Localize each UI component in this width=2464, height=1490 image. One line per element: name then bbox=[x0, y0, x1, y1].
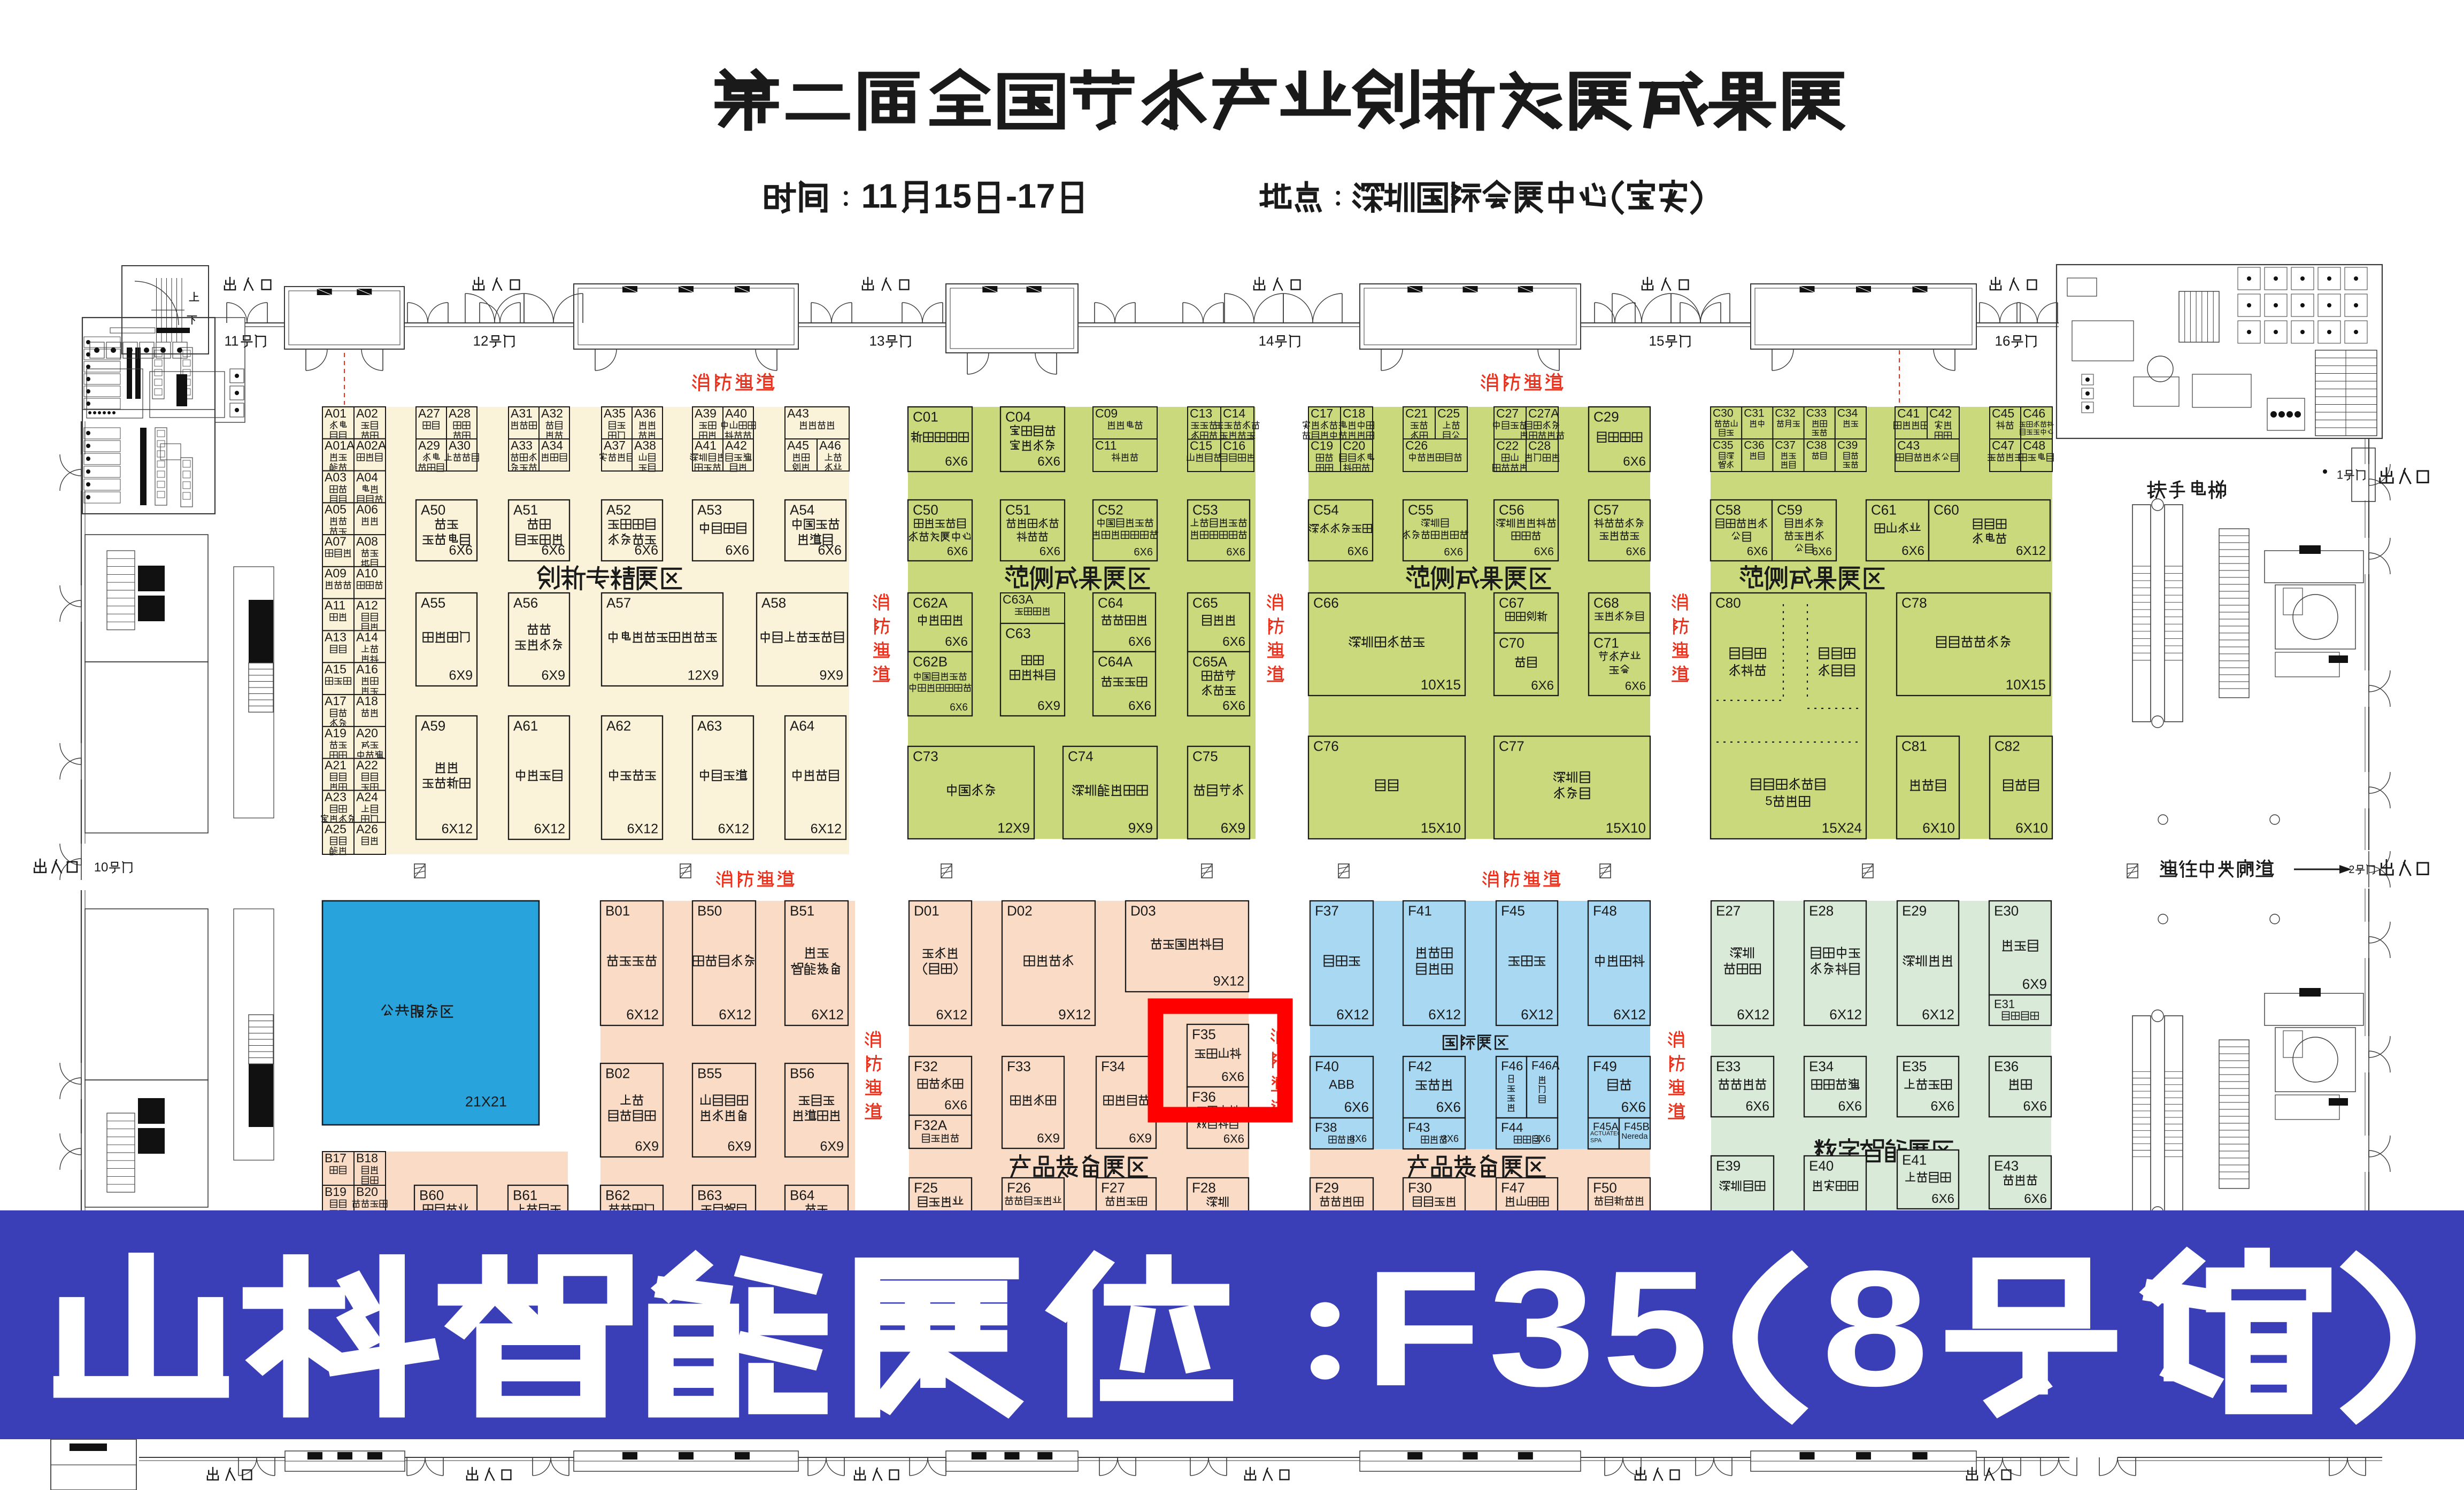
svg-text:C62A: C62A bbox=[913, 595, 948, 611]
svg-text:6X12: 6X12 bbox=[1829, 1006, 1862, 1022]
svg-text:C74: C74 bbox=[1068, 748, 1094, 765]
svg-text:C65A: C65A bbox=[1192, 654, 1228, 670]
svg-text:6X12: 6X12 bbox=[1613, 1006, 1646, 1022]
svg-text:F33: F33 bbox=[1007, 1059, 1031, 1075]
svg-text:B61: B61 bbox=[513, 1187, 537, 1203]
svg-text:A41: A41 bbox=[695, 438, 717, 452]
svg-text:SPA: SPA bbox=[1590, 1138, 1602, 1144]
svg-text:B64: B64 bbox=[790, 1187, 814, 1203]
svg-text:10X15: 10X15 bbox=[2006, 676, 2046, 692]
svg-text:B62: B62 bbox=[605, 1187, 630, 1203]
svg-text:12X9: 12X9 bbox=[688, 668, 719, 683]
svg-text:F25: F25 bbox=[914, 1180, 938, 1196]
svg-text:A46: A46 bbox=[819, 438, 841, 452]
svg-text:6X6: 6X6 bbox=[635, 543, 658, 558]
svg-text:6X6: 6X6 bbox=[1222, 635, 1245, 649]
svg-text:6X6: 6X6 bbox=[947, 544, 968, 558]
svg-text:A05: A05 bbox=[325, 503, 346, 516]
svg-text:F32: F32 bbox=[914, 1059, 938, 1075]
svg-text:6X6: 6X6 bbox=[1531, 678, 1554, 693]
svg-text:F44: F44 bbox=[1501, 1121, 1523, 1135]
svg-text:E35: E35 bbox=[1902, 1059, 1927, 1075]
svg-text:C66: C66 bbox=[1313, 595, 1339, 611]
svg-text:6X9: 6X9 bbox=[1037, 699, 1060, 713]
svg-text:A31: A31 bbox=[511, 406, 533, 420]
svg-text:C63A: C63A bbox=[1003, 592, 1034, 606]
svg-text:F32A: F32A bbox=[914, 1117, 948, 1133]
svg-text:C26: C26 bbox=[1405, 438, 1428, 452]
svg-text:E33: E33 bbox=[1716, 1059, 1741, 1075]
svg-text:9X12: 9X12 bbox=[1058, 1006, 1091, 1022]
svg-text:6X6: 6X6 bbox=[449, 543, 473, 558]
svg-text:E43: E43 bbox=[1994, 1158, 2019, 1174]
svg-text:E34: E34 bbox=[1809, 1059, 1834, 1075]
svg-text:6X6: 6X6 bbox=[1931, 1099, 1954, 1114]
svg-text:F43: F43 bbox=[1408, 1121, 1430, 1135]
svg-text:A63: A63 bbox=[697, 718, 722, 734]
svg-text:A32: A32 bbox=[541, 406, 563, 420]
svg-text:6X12: 6X12 bbox=[718, 822, 749, 837]
svg-text:C15: C15 bbox=[1190, 439, 1212, 453]
svg-text:C48: C48 bbox=[2023, 438, 2045, 452]
svg-text:6X6: 6X6 bbox=[1838, 1099, 1862, 1114]
svg-text:C59: C59 bbox=[1777, 502, 1803, 518]
svg-text:6X6: 6X6 bbox=[945, 635, 968, 649]
svg-text:A45: A45 bbox=[787, 438, 809, 452]
svg-text:6X6: 6X6 bbox=[1931, 1192, 1954, 1206]
svg-text:6X6: 6X6 bbox=[1037, 454, 1060, 469]
svg-text:6X12: 6X12 bbox=[534, 822, 565, 837]
svg-text:6X6: 6X6 bbox=[1625, 679, 1646, 692]
svg-text:B50: B50 bbox=[697, 903, 722, 919]
svg-text:A13: A13 bbox=[325, 630, 346, 644]
svg-text:A11: A11 bbox=[325, 598, 345, 612]
svg-text:C38: C38 bbox=[1806, 439, 1827, 452]
svg-text:C01: C01 bbox=[913, 409, 938, 425]
svg-text:C53: C53 bbox=[1192, 502, 1218, 518]
svg-text:E40: E40 bbox=[1809, 1158, 1834, 1174]
svg-text:A43: A43 bbox=[787, 406, 809, 420]
svg-text:C39: C39 bbox=[1837, 439, 1858, 452]
svg-text:C71: C71 bbox=[1593, 635, 1619, 651]
svg-text:6X6: 6X6 bbox=[1901, 544, 1924, 558]
svg-text:C29: C29 bbox=[1593, 409, 1619, 425]
svg-text:C27: C27 bbox=[1496, 406, 1519, 420]
svg-text:F40: F40 bbox=[1315, 1059, 1339, 1075]
svg-text:6X6: 6X6 bbox=[944, 1098, 967, 1113]
svg-text:A52: A52 bbox=[606, 502, 631, 518]
svg-text:A03: A03 bbox=[325, 470, 346, 484]
svg-text:6X6: 6X6 bbox=[1746, 1099, 1769, 1114]
svg-text:C16: C16 bbox=[1223, 439, 1245, 453]
svg-text:A27: A27 bbox=[418, 406, 440, 420]
svg-text:C70: C70 bbox=[1499, 635, 1524, 651]
svg-text:C62B: C62B bbox=[913, 654, 948, 670]
svg-text:C34: C34 bbox=[1837, 407, 1858, 420]
svg-text:C28: C28 bbox=[1528, 439, 1551, 453]
svg-text:E41: E41 bbox=[1902, 1152, 1927, 1168]
svg-text:C60: C60 bbox=[1934, 502, 1959, 518]
svg-text:5: 5 bbox=[1765, 794, 1772, 808]
svg-text:E29: E29 bbox=[1902, 903, 1927, 919]
svg-text:B55: B55 bbox=[697, 1066, 722, 1082]
svg-text:A18: A18 bbox=[356, 694, 378, 708]
svg-text:A02A: A02A bbox=[356, 438, 387, 452]
svg-text:-17: -17 bbox=[1006, 177, 1056, 215]
svg-text:F38: F38 bbox=[1315, 1121, 1337, 1135]
svg-text:A04: A04 bbox=[356, 470, 378, 484]
svg-text:A34: A34 bbox=[541, 438, 563, 452]
svg-text:A51: A51 bbox=[513, 502, 538, 518]
svg-text:A25: A25 bbox=[325, 822, 346, 836]
svg-text:A64: A64 bbox=[790, 718, 814, 734]
svg-text:F45B: F45B bbox=[1624, 1121, 1650, 1133]
svg-text:F45: F45 bbox=[1501, 903, 1525, 919]
svg-text:E36: E36 bbox=[1994, 1059, 2019, 1075]
svg-text:ABB: ABB bbox=[1329, 1077, 1354, 1092]
svg-text:C42: C42 bbox=[1929, 406, 1952, 420]
svg-text:C50: C50 bbox=[913, 502, 938, 518]
svg-text:A56: A56 bbox=[513, 595, 538, 611]
svg-text:F29: F29 bbox=[1315, 1180, 1339, 1196]
svg-text:C57: C57 bbox=[1593, 502, 1619, 518]
svg-text:21X21: 21X21 bbox=[465, 1093, 507, 1109]
svg-text:6X6: 6X6 bbox=[1222, 699, 1245, 713]
svg-text:A29: A29 bbox=[418, 438, 440, 452]
svg-text:A57: A57 bbox=[606, 595, 631, 611]
svg-text:C58: C58 bbox=[1715, 502, 1741, 518]
svg-text:6X6: 6X6 bbox=[945, 454, 968, 469]
svg-text:3: 3 bbox=[1488, 1237, 1595, 1420]
svg-text:6X12: 6X12 bbox=[627, 822, 658, 837]
svg-text:A08: A08 bbox=[356, 534, 378, 548]
svg-text:8: 8 bbox=[1822, 1237, 1929, 1420]
svg-text:B02: B02 bbox=[605, 1066, 630, 1082]
svg-text:A21: A21 bbox=[325, 758, 346, 772]
svg-text:A26: A26 bbox=[356, 822, 378, 836]
svg-text:F36: F36 bbox=[1192, 1089, 1216, 1105]
svg-text:C20: C20 bbox=[1343, 439, 1365, 453]
svg-text:C27A: C27A bbox=[1528, 406, 1559, 420]
svg-text:C09: C09 bbox=[1095, 406, 1118, 420]
svg-text:C65: C65 bbox=[1192, 595, 1218, 611]
svg-text:C13: C13 bbox=[1190, 406, 1212, 420]
svg-text:6X12: 6X12 bbox=[1428, 1006, 1461, 1022]
svg-text:C78: C78 bbox=[1901, 595, 1927, 611]
svg-text:A38: A38 bbox=[634, 438, 656, 452]
svg-text:6X12: 6X12 bbox=[626, 1006, 659, 1022]
svg-text:C19: C19 bbox=[1311, 439, 1333, 453]
svg-text:6X6: 6X6 bbox=[1128, 699, 1151, 713]
svg-text:A09: A09 bbox=[325, 566, 346, 580]
svg-text:5: 5 bbox=[1601, 1237, 1708, 1420]
svg-text:A14: A14 bbox=[356, 630, 378, 644]
svg-text:6X6: 6X6 bbox=[1747, 544, 1768, 558]
svg-text:A06: A06 bbox=[356, 503, 378, 516]
svg-text:C21: C21 bbox=[1405, 406, 1428, 420]
svg-text:6X9: 6X9 bbox=[1221, 820, 1245, 836]
svg-text:9X12: 9X12 bbox=[1213, 974, 1244, 989]
svg-text:6X6: 6X6 bbox=[1626, 546, 1646, 558]
svg-text:C77: C77 bbox=[1499, 738, 1524, 754]
svg-text:A61: A61 bbox=[513, 718, 538, 734]
svg-text:C52: C52 bbox=[1098, 502, 1123, 518]
svg-text:C43: C43 bbox=[1897, 438, 1920, 452]
svg-text:C04: C04 bbox=[1005, 409, 1031, 425]
svg-text:B01: B01 bbox=[605, 903, 630, 919]
svg-text:C67: C67 bbox=[1499, 595, 1524, 611]
svg-text:C22: C22 bbox=[1496, 439, 1519, 453]
svg-text:6X9: 6X9 bbox=[1037, 1131, 1060, 1146]
svg-text:F41: F41 bbox=[1408, 903, 1432, 919]
svg-text:A42: A42 bbox=[725, 438, 747, 452]
svg-text:A20: A20 bbox=[356, 726, 378, 740]
svg-text:C25: C25 bbox=[1437, 406, 1460, 420]
svg-text:13: 13 bbox=[869, 333, 885, 349]
svg-text:C31: C31 bbox=[1744, 407, 1765, 420]
svg-text:C33: C33 bbox=[1806, 407, 1827, 420]
svg-text:6X6: 6X6 bbox=[726, 543, 749, 558]
svg-text:15: 15 bbox=[934, 177, 972, 215]
svg-text:A17: A17 bbox=[325, 694, 346, 708]
svg-text:6X12: 6X12 bbox=[811, 1006, 844, 1022]
svg-text:F46: F46 bbox=[1501, 1059, 1523, 1074]
svg-text:6X12: 6X12 bbox=[936, 1008, 967, 1023]
svg-text:6X12: 6X12 bbox=[1737, 1006, 1769, 1022]
svg-text:D03: D03 bbox=[1130, 903, 1156, 919]
svg-text:C82: C82 bbox=[1995, 738, 2020, 754]
svg-text:C64: C64 bbox=[1098, 595, 1123, 611]
svg-text:C45: C45 bbox=[1992, 406, 2014, 420]
svg-text:B56: B56 bbox=[790, 1066, 814, 1082]
svg-text:C32: C32 bbox=[1775, 407, 1796, 420]
svg-text:B60: B60 bbox=[419, 1187, 444, 1203]
svg-text:15: 15 bbox=[1649, 333, 1665, 349]
svg-text:A12: A12 bbox=[356, 598, 378, 612]
svg-text:A22: A22 bbox=[356, 758, 378, 772]
svg-text:1: 1 bbox=[2337, 468, 2343, 481]
svg-text:6X9: 6X9 bbox=[542, 668, 565, 683]
svg-text:F35: F35 bbox=[1192, 1026, 1216, 1043]
svg-text:6X6: 6X6 bbox=[1812, 546, 1832, 558]
svg-text:E27: E27 bbox=[1716, 903, 1741, 919]
svg-text:F49: F49 bbox=[1593, 1059, 1617, 1075]
svg-text:6X12: 6X12 bbox=[1336, 1006, 1369, 1022]
svg-text:F: F bbox=[1364, 1237, 1482, 1420]
svg-text:C11: C11 bbox=[1095, 438, 1117, 452]
svg-text:10X15: 10X15 bbox=[1421, 676, 1461, 692]
svg-text:6X6: 6X6 bbox=[1534, 546, 1554, 558]
svg-text:E31: E31 bbox=[1994, 997, 2015, 1010]
svg-text:12X9: 12X9 bbox=[997, 820, 1030, 836]
svg-text:F34: F34 bbox=[1101, 1059, 1125, 1075]
svg-text:6X12: 6X12 bbox=[442, 822, 473, 837]
svg-text:F47: F47 bbox=[1501, 1180, 1525, 1196]
svg-text:15X10: 15X10 bbox=[1421, 820, 1461, 836]
svg-text:3X6: 3X6 bbox=[1350, 1133, 1367, 1144]
svg-text:6X6: 6X6 bbox=[1621, 1099, 1646, 1115]
svg-text:C61: C61 bbox=[1871, 502, 1897, 518]
svg-text:6X6: 6X6 bbox=[1128, 635, 1151, 649]
svg-text:A28: A28 bbox=[449, 406, 471, 420]
svg-text:6X6: 6X6 bbox=[1344, 1099, 1369, 1115]
svg-text:A37: A37 bbox=[604, 438, 626, 452]
svg-text:6X12: 6X12 bbox=[1922, 1006, 1954, 1022]
svg-text:E39: E39 bbox=[1716, 1158, 1741, 1174]
svg-text:C76: C76 bbox=[1313, 738, 1339, 754]
svg-text:D01: D01 bbox=[914, 903, 940, 919]
svg-text:6X6: 6X6 bbox=[1226, 546, 1245, 558]
svg-text:A54: A54 bbox=[790, 502, 814, 518]
svg-text:A01: A01 bbox=[325, 406, 346, 420]
svg-text:11: 11 bbox=[225, 333, 239, 349]
svg-text:F37: F37 bbox=[1315, 903, 1339, 919]
svg-text:F46A: F46A bbox=[1531, 1059, 1560, 1072]
svg-text:3X6: 3X6 bbox=[1442, 1133, 1459, 1144]
svg-text:C35: C35 bbox=[1713, 439, 1734, 452]
svg-text:A39: A39 bbox=[695, 406, 717, 420]
svg-text:6X12: 6X12 bbox=[811, 822, 842, 837]
svg-text:A62: A62 bbox=[606, 718, 631, 734]
svg-text:16: 16 bbox=[1995, 333, 2011, 349]
svg-text:A33: A33 bbox=[511, 438, 533, 452]
svg-text:6X10: 6X10 bbox=[2015, 820, 2048, 836]
svg-text:A58: A58 bbox=[761, 595, 786, 611]
svg-text:A02: A02 bbox=[356, 406, 378, 420]
svg-text:B17: B17 bbox=[325, 1151, 346, 1165]
svg-text:6X12: 6X12 bbox=[1521, 1006, 1553, 1022]
svg-text:A15: A15 bbox=[325, 662, 346, 676]
svg-text:6X6: 6X6 bbox=[1623, 454, 1646, 469]
svg-text:6X6: 6X6 bbox=[1347, 544, 1368, 558]
svg-text:14: 14 bbox=[1259, 333, 1274, 349]
svg-text:A10: A10 bbox=[356, 566, 378, 580]
svg-text:C54: C54 bbox=[1313, 502, 1339, 518]
svg-text:A16: A16 bbox=[356, 662, 378, 676]
svg-text:A24: A24 bbox=[356, 790, 378, 804]
svg-text:6X12: 6X12 bbox=[719, 1006, 751, 1022]
svg-text:F48: F48 bbox=[1593, 903, 1617, 919]
svg-text:6X6: 6X6 bbox=[2023, 1099, 2047, 1114]
svg-text:B19: B19 bbox=[325, 1185, 346, 1199]
svg-text:E28: E28 bbox=[1809, 903, 1834, 919]
svg-text:A50: A50 bbox=[421, 502, 445, 518]
svg-text:C37: C37 bbox=[1775, 439, 1796, 452]
svg-text:C17: C17 bbox=[1311, 406, 1333, 420]
svg-text:6X6: 6X6 bbox=[1221, 1070, 1244, 1084]
svg-text:C55: C55 bbox=[1408, 502, 1434, 518]
svg-text:A59: A59 bbox=[421, 718, 445, 734]
svg-text:6X9: 6X9 bbox=[820, 1139, 844, 1154]
svg-text:A19: A19 bbox=[325, 726, 346, 740]
svg-text:B51: B51 bbox=[790, 903, 814, 919]
svg-text:15X24: 15X24 bbox=[1822, 820, 1862, 836]
svg-text:2: 2 bbox=[2348, 864, 2354, 876]
svg-text:C63: C63 bbox=[1005, 626, 1031, 642]
svg-text:A36: A36 bbox=[634, 406, 656, 420]
svg-text:C46: C46 bbox=[2023, 406, 2045, 420]
svg-text:C18: C18 bbox=[1343, 406, 1365, 420]
svg-text:C36: C36 bbox=[1744, 439, 1765, 452]
svg-text:B20: B20 bbox=[356, 1185, 378, 1199]
svg-text:C64A: C64A bbox=[1098, 654, 1133, 670]
svg-text:Nereda: Nereda bbox=[1621, 1132, 1648, 1141]
svg-text:F26: F26 bbox=[1007, 1180, 1031, 1196]
svg-text:6X9: 6X9 bbox=[2022, 976, 2047, 992]
svg-text:C80: C80 bbox=[1715, 595, 1741, 611]
svg-text:A30: A30 bbox=[449, 438, 471, 452]
svg-text:6X6: 6X6 bbox=[1039, 544, 1060, 558]
svg-text:6X9: 6X9 bbox=[449, 668, 473, 683]
svg-text:6X6: 6X6 bbox=[1436, 1099, 1461, 1115]
svg-text:E30: E30 bbox=[1994, 903, 2019, 919]
svg-text:A55: A55 bbox=[421, 595, 445, 611]
svg-text:6X6: 6X6 bbox=[1134, 546, 1153, 558]
svg-text:F50: F50 bbox=[1593, 1180, 1617, 1196]
svg-text:6X6: 6X6 bbox=[818, 543, 842, 558]
svg-text:C51: C51 bbox=[1005, 502, 1031, 518]
svg-text:C47: C47 bbox=[1992, 438, 2014, 452]
svg-text:A23: A23 bbox=[325, 790, 346, 804]
svg-text:3X6: 3X6 bbox=[1534, 1133, 1551, 1144]
svg-text:C41: C41 bbox=[1897, 406, 1920, 420]
svg-text:6X9: 6X9 bbox=[728, 1139, 751, 1154]
svg-text:9X9: 9X9 bbox=[1128, 820, 1153, 836]
svg-text:12: 12 bbox=[473, 333, 489, 349]
svg-text:C56: C56 bbox=[1499, 502, 1524, 518]
svg-text:9X9: 9X9 bbox=[820, 668, 843, 683]
svg-text:6X12: 6X12 bbox=[2016, 544, 2046, 558]
svg-text:F27: F27 bbox=[1101, 1180, 1125, 1196]
svg-text:F42: F42 bbox=[1408, 1059, 1432, 1075]
svg-text:A40: A40 bbox=[725, 406, 747, 420]
svg-text:D02: D02 bbox=[1007, 903, 1033, 919]
svg-text:6X6: 6X6 bbox=[1444, 546, 1463, 558]
svg-text:A01A: A01A bbox=[325, 438, 355, 452]
svg-text:C75: C75 bbox=[1192, 748, 1218, 765]
svg-text:C30: C30 bbox=[1713, 407, 1734, 420]
svg-text:6X6: 6X6 bbox=[2024, 1192, 2047, 1206]
svg-text:10: 10 bbox=[94, 860, 109, 875]
svg-text:A07: A07 bbox=[325, 534, 346, 548]
svg-text:C68: C68 bbox=[1593, 595, 1619, 611]
svg-text:A53: A53 bbox=[697, 502, 722, 518]
svg-text:C81: C81 bbox=[1901, 738, 1927, 754]
svg-text:6X9: 6X9 bbox=[635, 1139, 659, 1154]
svg-text:6X6: 6X6 bbox=[950, 702, 968, 713]
svg-text:B18: B18 bbox=[356, 1151, 378, 1165]
svg-text:6X10: 6X10 bbox=[1922, 820, 1955, 836]
svg-text:B63: B63 bbox=[697, 1187, 722, 1203]
svg-text:F30: F30 bbox=[1408, 1180, 1432, 1196]
svg-text:11: 11 bbox=[861, 177, 898, 215]
svg-text:6X6: 6X6 bbox=[1223, 1132, 1244, 1145]
svg-text:F28: F28 bbox=[1192, 1180, 1216, 1196]
svg-text:A35: A35 bbox=[604, 406, 626, 420]
svg-text:6X6: 6X6 bbox=[542, 543, 565, 558]
svg-text:6X9: 6X9 bbox=[1129, 1131, 1152, 1146]
svg-text:C73: C73 bbox=[913, 748, 938, 765]
svg-text:C14: C14 bbox=[1223, 406, 1245, 420]
svg-text:15X10: 15X10 bbox=[1606, 820, 1646, 836]
